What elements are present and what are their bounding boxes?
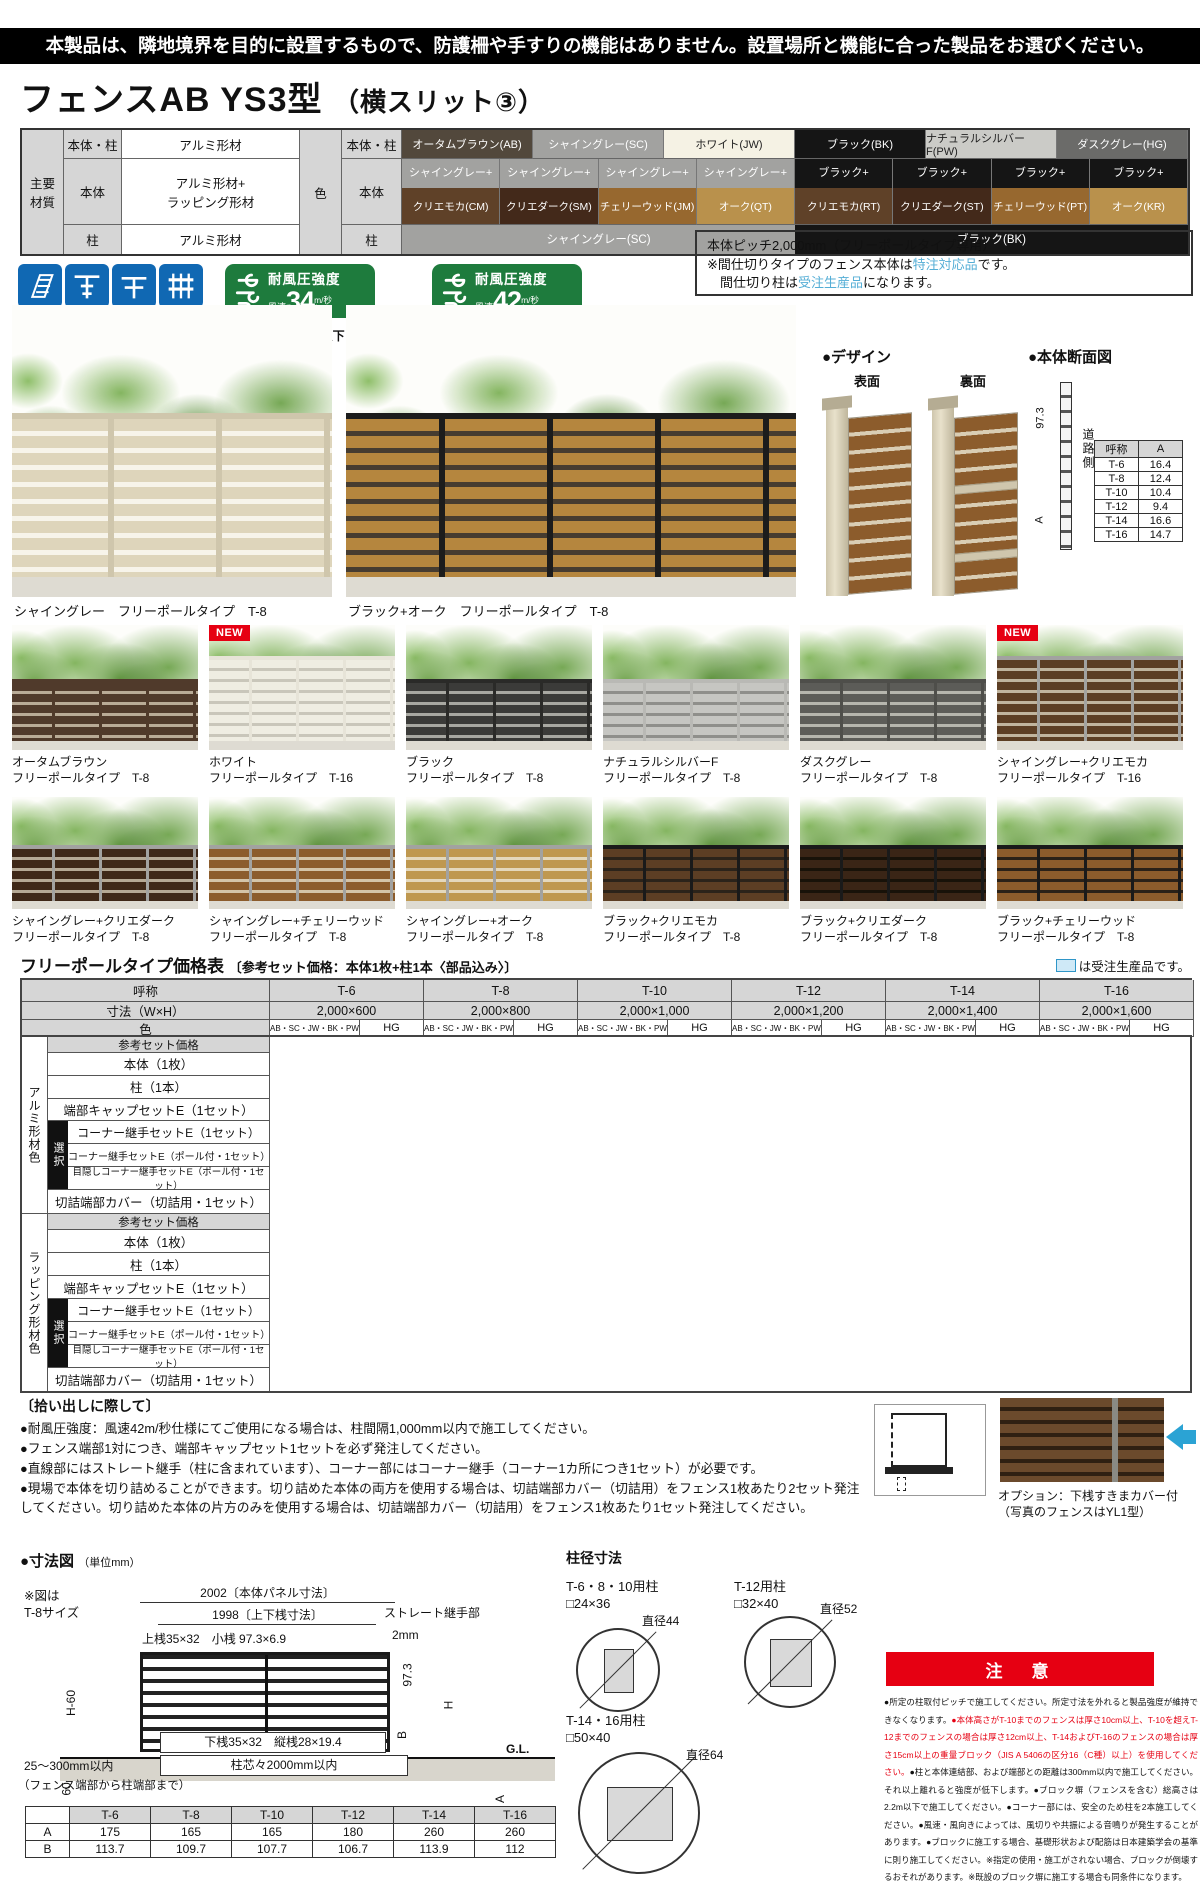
price-set-row: 参考セット価格 xyxy=(48,1214,269,1230)
type-name: フリーポールタイプ T-8 xyxy=(997,929,1183,945)
fence-photo xyxy=(12,625,198,750)
color-name: ブラック+クリエモカ xyxy=(603,913,789,929)
price-col-header: T-10 xyxy=(578,980,732,1002)
diameter-label: 直径52 xyxy=(820,1600,857,1617)
end-range-dim: 25～300mm以内 xyxy=(24,1757,113,1774)
color-code-group: AB・SC・JW・BK・PW xyxy=(886,1020,976,1036)
price-group: アルミ形材色参考セット価格本体（1枚）柱（1本）端部キャップセットE（1セット）… xyxy=(22,1037,269,1214)
price-size-header: 寸法（W×H） xyxy=(22,1002,270,1020)
sketch-panel xyxy=(891,1413,947,1467)
new-badge: NEW xyxy=(209,625,250,641)
wind-badge-title: 耐風圧強度 xyxy=(475,268,548,288)
legend-color-box xyxy=(1056,959,1076,972)
photo-caption: オータムブラウンフリーポールタイプ T-8 xyxy=(12,754,198,786)
photo-caption: シャイングレー+クリエダークフリーポールタイプ T-8 xyxy=(12,913,198,945)
ground-strip xyxy=(406,741,592,750)
gallery-item: ブラック+クリエモカフリーポールタイプ T-8 xyxy=(603,797,789,945)
price-group-label-text: アルミ形材色 xyxy=(26,1086,43,1164)
color-swatch: ダスクグレー(HG) xyxy=(1057,130,1188,159)
color-name: ブラック+クリエダーク xyxy=(800,913,986,929)
color-code-group: AB・SC・JW・BK・PW xyxy=(732,1020,822,1036)
ab-col-header: T-12 xyxy=(313,1807,394,1824)
photo-caption: ブラック+オーク フリーポールタイプ T-8 xyxy=(348,601,608,620)
ab-value-cell: 260 xyxy=(475,1824,556,1841)
cross-section-cell: T-8 xyxy=(1095,472,1139,486)
photo-caption: ダスクグレーフリーポールタイプ T-8 xyxy=(800,754,986,786)
multi-tier-glyph xyxy=(164,269,198,303)
ab-row: A175165165180260260 xyxy=(26,1824,556,1841)
design-heading: ●デザイン xyxy=(822,346,1022,367)
partition-icon xyxy=(112,264,156,308)
price-row-label: 柱（1本） xyxy=(48,1076,269,1099)
sketch-post xyxy=(897,1477,906,1491)
select-rows: コーナー継手セットE（1セット）コーナー継手セットE（ポール付・1セット）目隠し… xyxy=(68,1299,269,1368)
option-cover-photo xyxy=(1000,1398,1164,1482)
price-table-body: アルミ形材色参考セット価格本体（1枚）柱（1本）端部キャップセットE（1セット）… xyxy=(20,1035,1192,1393)
note-item: ●耐風圧強度：風速42m/秒仕様にてご使用になる場合は、柱間隔1,000mm以内… xyxy=(20,1419,872,1438)
fence-photo xyxy=(12,305,332,597)
photo-caption: ホワイトフリーポールタイプ T-16 xyxy=(209,754,395,786)
cross-section-cell: T-14 xyxy=(1095,514,1139,528)
type-name: フリーポールタイプ T-16 xyxy=(209,770,395,786)
fence-graphic xyxy=(12,679,198,742)
dim-h: H xyxy=(441,1701,455,1710)
cross-section-cell: 16.4 xyxy=(1139,458,1183,472)
cross-section-cell: 14.7 xyxy=(1139,528,1183,542)
wind-badge-title: 耐風圧強度 xyxy=(268,268,341,288)
ab-col-header: T-10 xyxy=(232,1807,313,1824)
price-col-header: T-14 xyxy=(886,980,1040,1002)
gallery-item: シャイングレー+チェリーウッドフリーポールタイプ T-8 xyxy=(209,797,395,945)
hero-photo-cell: ブラック+オーク フリーポールタイプ T-8 xyxy=(346,305,796,597)
color-code-hg: HG xyxy=(822,1020,885,1036)
photo-caption: シャイングレー+オークフリーポールタイプ T-8 xyxy=(406,913,592,945)
fence-graphic xyxy=(800,679,986,742)
price-row-label: 端部キャップセットE（1セット） xyxy=(48,1276,269,1299)
color-row-body-pillar: オータムブラウン(AB)シャイングレー(SC)ホワイト(JW)ブラック(BK)ナ… xyxy=(402,130,1188,159)
hero-photo-cell: シャイングレー フリーポールタイプ T-8 xyxy=(12,305,332,597)
material-value-column: アルミ形材 アルミ形材+ ラッピング形材 アルミ形材 xyxy=(122,130,300,254)
color-swatch-top: ブラック+ xyxy=(992,159,1089,188)
color-name: ダスクグレー xyxy=(800,754,986,770)
select-row-group: 選択コーナー継手セットE（1セット）コーナー継手セットE（ポール付・1セット）目… xyxy=(48,1299,269,1368)
ground-line-label: G.L. xyxy=(506,1742,529,1756)
dim-line xyxy=(140,1602,395,1603)
price-size-cell: 2,000×600 xyxy=(270,1002,424,1020)
photo-caption: ナチュラルシルバーFフリーポールタイプ T-8 xyxy=(603,754,789,786)
diameter-label: 直径64 xyxy=(686,1746,723,1763)
cross-section-col-header: 呼称 xyxy=(1095,441,1139,458)
ground-strip xyxy=(800,901,986,909)
price-data-area xyxy=(270,1037,1190,1391)
color-row-body: シャイングレー+クリエモカ(CM)シャイングレー+クリエダーク(SM)シャイング… xyxy=(402,159,1188,225)
material-part: 柱 xyxy=(64,225,122,254)
wood-panel-graphic xyxy=(848,412,912,595)
select-rows: コーナー継手セットE（1セット）コーナー継手セットE（ポール付・1セット）目隠し… xyxy=(68,1121,269,1190)
fence-photo xyxy=(997,797,1183,909)
photo-caption: ブラックフリーポールタイプ T-8 xyxy=(406,754,592,786)
partition-glyph xyxy=(117,269,151,303)
wood-panel-graphic xyxy=(954,412,1018,595)
color-header: 色 xyxy=(300,130,342,254)
cross-section-row: T-1010.4 xyxy=(1095,486,1183,500)
price-table-header: 呼称T-6T-8T-10T-12T-14T-16寸法（W×H）2,000×600… xyxy=(20,978,1192,1037)
color-swatch-combo: ブラック+チェリーウッド(PT) xyxy=(992,159,1090,225)
ab-col-header: T-6 xyxy=(70,1807,151,1824)
color-code-hg: HG xyxy=(976,1020,1039,1036)
option-caption: オプション：下桟すきまカバー付 （写真のフェンスはYL1型） xyxy=(998,1488,1178,1520)
fence-photo xyxy=(603,625,789,750)
gallery-item: シャイングレー+クリエダークフリーポールタイプ T-8 xyxy=(12,797,198,945)
ab-value-cell: 113.9 xyxy=(394,1841,475,1858)
color-swatch-top: ブラック+ xyxy=(1090,159,1187,188)
ground-strip xyxy=(12,741,198,750)
fence-graphic xyxy=(346,413,796,577)
price-row-label: 目隠しコーナー継手セットE（ポール付・1セット） xyxy=(68,1167,269,1190)
color-swatch-bottom: クリエモカ(RT) xyxy=(795,188,892,224)
color-code-group: AB・SC・JW・BK・PW xyxy=(270,1020,360,1036)
gallery-item: NEWシャイングレー+クリエモカフリーポールタイプ T-16 xyxy=(997,625,1183,786)
fence-photo xyxy=(346,305,796,597)
product-name: フェンスAB YS3型 xyxy=(20,81,323,119)
gallery-item: NEWホワイトフリーポールタイプ T-16 xyxy=(209,625,395,786)
color-name: ナチュラルシルバーF xyxy=(603,754,789,770)
ab-row: B113.7109.7107.7106.7113.9112 xyxy=(26,1841,556,1858)
price-col-header: T-12 xyxy=(732,980,886,1002)
fence-graphic xyxy=(800,845,986,901)
cross-section-cell: 16.6 xyxy=(1139,514,1183,528)
gallery-item: ブラック+クリエダークフリーポールタイプ T-8 xyxy=(800,797,986,945)
bottom-rail-dim: 下桟35×32 縦桟28×19.4 xyxy=(160,1732,386,1753)
color-swatch-bottom: クリエダーク(ST) xyxy=(893,188,990,224)
fence-graphic xyxy=(997,656,1183,741)
post-graphic xyxy=(826,405,848,596)
type-name: フリーポールタイプ T-8 xyxy=(406,929,592,945)
post-type-label: T-14・16用柱 xyxy=(566,1710,645,1729)
ab-value-cell: 106.7 xyxy=(313,1841,394,1858)
ab-col-header: T-16 xyxy=(475,1807,556,1824)
color-swatch-bottom: チェリーウッド(JM) xyxy=(599,188,696,224)
ab-header-row: T-6T-8T-10T-12T-14T-16 xyxy=(26,1807,556,1824)
fence-graphic xyxy=(12,413,332,577)
ab-value-cell: 107.7 xyxy=(232,1841,313,1858)
post-circle-diagram xyxy=(576,1628,660,1712)
color-swatch: オータムブラウン(AB) xyxy=(402,130,533,159)
material-value: アルミ形材+ ラッピング形材 xyxy=(122,159,300,225)
diameter-label: 直径44 xyxy=(642,1612,679,1629)
price-name-header: 呼称 xyxy=(22,980,270,1002)
info-line: 本体ピッチ2,000mm（フリーポールタイプ専用） xyxy=(707,237,1181,256)
info-line: 間仕切り柱は受注生産品になります。 xyxy=(707,274,1181,293)
note-item: ●直線部にはストレート継手（柱に含まれています）、コーナー部にはコーナー継手（コ… xyxy=(20,1459,872,1478)
ground-strip xyxy=(997,901,1183,909)
cross-section-row: T-812.4 xyxy=(1095,472,1183,486)
material-part: 本体 xyxy=(64,159,122,225)
cross-section-heading: ●本体断面図 xyxy=(1028,346,1194,367)
fence-graphic xyxy=(209,845,395,901)
ground-strip xyxy=(800,741,986,750)
fence-graphic xyxy=(406,845,592,901)
note-item: ●フェンス端部1対につき、端部キャップセット1セットを必ず発注してください。 xyxy=(20,1439,872,1458)
materials-header: 主要 材質 xyxy=(22,130,64,254)
post-type-label: T-6・8・10用柱 xyxy=(566,1576,658,1595)
color-part: 柱 xyxy=(342,225,402,254)
gallery-item: オータムブラウンフリーポールタイプ T-8 xyxy=(12,625,198,786)
price-size-cell: 2,000×1,200 xyxy=(732,1002,886,1020)
color-swatch-bottom: チェリーウッド(PT) xyxy=(992,188,1089,224)
notes-heading: 〔拾い出しに際して〕 xyxy=(20,1396,872,1416)
color-name: オータムブラウン xyxy=(12,754,198,770)
color-swatch: ブラック(BK) xyxy=(795,130,926,159)
price-col-header: T-16 xyxy=(1040,980,1194,1002)
color-code-group: AB・SC・JW・BK・PW xyxy=(578,1020,668,1036)
ab-value-cell: 180 xyxy=(313,1824,394,1841)
multi-tier-icon xyxy=(159,264,203,308)
type-name: フリーポールタイプ T-8 xyxy=(209,929,395,945)
front-label: 表面 xyxy=(822,371,912,391)
price-row-label: 本体（1枚） xyxy=(48,1053,269,1076)
ground-strip xyxy=(997,741,1183,750)
special-order-highlight: 特注対応品 xyxy=(913,257,978,272)
color-swatch-top: シャイングレー+ xyxy=(500,159,597,188)
color-swatch-combo: シャイングレー+クリエモカ(CM) xyxy=(402,159,500,225)
price-row-label: コーナー継手セットE（1セット） xyxy=(68,1299,269,1322)
rail-width-dim: 1998〔上下桟寸法〕 xyxy=(150,1606,385,1623)
price-group-label-text: ラッピング形材色 xyxy=(26,1251,43,1355)
color-part-column: 本体・柱 本体 柱 xyxy=(342,130,402,254)
top-rail-dim: 上桟35×32 小桟 97.3×6.9 xyxy=(142,1630,286,1647)
cross-section-row: T-1614.7 xyxy=(1095,528,1183,542)
gallery-item: ダスクグレーフリーポールタイプ T-8 xyxy=(800,625,986,786)
price-col-header: T-8 xyxy=(424,980,578,1002)
gallery-item: ブラック+チェリーウッドフリーポールタイプ T-8 xyxy=(997,797,1183,945)
color-swatch-combo: ブラック+オーク(KR) xyxy=(1090,159,1188,225)
color-name: シャイングレー+クリエダーク xyxy=(12,913,198,929)
back-label: 裏面 xyxy=(928,371,1018,391)
ground-strip xyxy=(406,901,592,909)
photo-caption: シャイングレー+チェリーウッドフリーポールタイプ T-8 xyxy=(209,913,395,945)
color-swatch-top: ブラック+ xyxy=(893,159,990,188)
dim-line xyxy=(158,1624,376,1625)
diameter-line xyxy=(582,1756,695,1869)
price-size-cell: 2,000×1,600 xyxy=(1040,1002,1194,1020)
design-back-figure: 裏面 xyxy=(928,371,1018,599)
fence-graphic xyxy=(603,845,789,901)
joint-label: ストレート継手部 xyxy=(384,1604,480,1621)
cross-section-cell: T-16 xyxy=(1095,528,1139,542)
option-arrow-icon-bar xyxy=(1183,1430,1196,1444)
price-size-cell: 2,000×800 xyxy=(424,1002,578,1020)
fence-photo: NEW xyxy=(997,625,1183,750)
product-subtitle: （横スリット③） xyxy=(333,87,545,117)
pitch-info-box: 本体ピッチ2,000mm（フリーポールタイプ専用） ※間仕切りタイプのフェンス本… xyxy=(695,230,1193,296)
cross-section-row: T-1416.6 xyxy=(1095,514,1183,528)
ab-row-label: A xyxy=(26,1824,70,1841)
price-group-label: ラッピング形材色 xyxy=(22,1214,48,1391)
type-name: フリーポールタイプ T-8 xyxy=(12,929,198,945)
free-pole-icon xyxy=(65,264,109,308)
ab-value-cell: 113.7 xyxy=(70,1841,151,1858)
price-row-label: 切詰端部カバー（切詰用・1セット） xyxy=(48,1190,269,1213)
photo-caption: シャイングレー+クリエモカフリーポールタイプ T-16 xyxy=(997,754,1183,786)
price-row-label: 目隠しコーナー継手セットE（ポール付・1セット） xyxy=(68,1345,269,1368)
fence-photo xyxy=(603,797,789,909)
fence-graphic xyxy=(603,679,789,742)
single-side-pattern-icon xyxy=(18,264,62,308)
ab-value-cell: 175 xyxy=(70,1824,151,1841)
page-title: フェンスAB YS3型 （横スリット③） xyxy=(20,72,545,121)
single-side-pattern-glyph xyxy=(23,269,57,303)
post-section-square xyxy=(604,1649,634,1693)
price-group-rows: 参考セット価格本体（1枚）柱（1本）端部キャップセットE（1セット）選択コーナー… xyxy=(48,1214,269,1391)
height-dimension-table: T-6T-8T-10T-12T-14T-16A17516516518026026… xyxy=(25,1806,556,1858)
end-range-note: （フェンス端部から柱端部まで） xyxy=(18,1777,190,1793)
fence-graphic xyxy=(997,845,1183,901)
color-swatch-top: シャイングレー+ xyxy=(402,159,499,188)
fence-photo xyxy=(406,797,592,909)
cross-section-cell: T-12 xyxy=(1095,500,1139,514)
cross-section-cell: 9.4 xyxy=(1139,500,1183,514)
color-swatch-bottom: クリエダーク(SM) xyxy=(500,188,597,224)
type-name: フリーポールタイプ T-8 xyxy=(603,929,789,945)
type-name: フリーポールタイプ T-8 xyxy=(800,929,986,945)
panel-width-dim: 2002〔本体パネル寸法〕 xyxy=(135,1584,400,1601)
ground-strip xyxy=(603,901,789,909)
free-pole-glyph xyxy=(70,269,104,303)
price-size-cell: 2,000×1,400 xyxy=(886,1002,1040,1020)
dimension-figure-heading: ●寸法図 （単位mm） xyxy=(20,1550,141,1571)
type-name: フリーポールタイプ T-8 xyxy=(12,770,198,786)
dim-97-3: 97.3 xyxy=(1035,407,1047,428)
ordering-notes: 〔拾い出しに際して〕 ●耐風圧強度：風速42m/秒仕様にてご使用になる場合は、柱… xyxy=(20,1396,872,1518)
price-group: ラッピング形材色参考セット価格本体（1枚）柱（1本）端部キャップセットE（1セッ… xyxy=(22,1214,269,1391)
price-col-header: T-6 xyxy=(270,980,424,1002)
caution-text: ●所定の柱取付ピッチで施工してください。所定寸法を外れると製品強度が維持できなく… xyxy=(884,1694,1198,1887)
photo-caption: シャイングレー フリーポールタイプ T-8 xyxy=(14,601,267,620)
color-swatch-top: シャイングレー+ xyxy=(599,159,696,188)
color-code-group: AB・SC・JW・BK・PW xyxy=(424,1020,514,1036)
color-part: 本体 xyxy=(342,159,402,225)
caution-segment: ●柱と本体連結部、および端部との距離は300mm以内で施工してください。それ以上… xyxy=(884,1767,1198,1882)
material-part-column: 本体・柱 本体 柱 xyxy=(64,130,122,254)
cross-section-cell: T-10 xyxy=(1095,486,1139,500)
material-part: 本体・柱 xyxy=(64,130,122,159)
post-type-label: T-12用柱 xyxy=(734,1576,786,1595)
price-size-cell: 2,000×1,000 xyxy=(578,1002,732,1020)
dim-a-label: A xyxy=(493,1795,507,1803)
diameter-line xyxy=(579,1631,656,1708)
ab-row-label: B xyxy=(26,1841,70,1858)
post-size-heading: 柱径寸法 xyxy=(566,1548,622,1568)
color-swatch-combo: シャイングレー+オーク(QT) xyxy=(697,159,795,225)
design-front-figure: 表面 xyxy=(822,371,912,599)
fence-photo xyxy=(800,797,986,909)
fence-graphic xyxy=(12,845,198,901)
photo-caption: ブラック+チェリーウッドフリーポールタイプ T-8 xyxy=(997,913,1183,945)
cross-section-cell: 12.4 xyxy=(1139,472,1183,486)
price-row-label: 本体（1枚） xyxy=(48,1230,269,1253)
post-pitch-dim: 柱芯々2000mm以内 xyxy=(160,1755,408,1776)
color-swatch: シャイングレー(SC) xyxy=(533,130,664,159)
color-part: 本体・柱 xyxy=(342,130,402,159)
photo-caption: ブラック+クリエモカフリーポールタイプ T-8 xyxy=(603,913,789,945)
made-to-order-legend: は受注生産品です。 xyxy=(1056,956,1190,975)
color-code-hg: HG xyxy=(668,1020,731,1036)
select-label-text: 選択 xyxy=(50,1320,66,1346)
fence-graphic xyxy=(406,679,592,742)
option-arrow-icon xyxy=(1166,1424,1183,1450)
color-swatch-top: シャイングレー+ xyxy=(697,159,794,188)
material-value: アルミ形材 xyxy=(122,130,300,159)
color-swatch-top: ブラック+ xyxy=(795,159,892,188)
photo-caption: ブラック+クリエダークフリーポールタイプ T-8 xyxy=(800,913,986,945)
ab-value-cell: 165 xyxy=(232,1824,313,1841)
price-set-row: 参考セット価格 xyxy=(48,1037,269,1053)
post-graphic xyxy=(932,405,954,596)
diameter-line xyxy=(748,1620,833,1705)
figure-size-note: ※図は T-8サイズ xyxy=(24,1588,79,1622)
post-size-value: □32×40 xyxy=(734,1596,778,1611)
ab-col-header: T-8 xyxy=(151,1807,232,1824)
ground-strip xyxy=(603,741,789,750)
color-swatch: ナチュラルシルバーF(PW) xyxy=(926,130,1057,159)
dim-h60: H-60 xyxy=(64,1690,78,1716)
fence-photo xyxy=(800,625,986,750)
price-row-label: 端部キャップセットE（1セット） xyxy=(48,1099,269,1122)
fence-photo: NEW xyxy=(209,625,395,750)
ab-corner-cell xyxy=(26,1807,70,1824)
post-size-value: □24×36 xyxy=(566,1596,610,1611)
new-badge: NEW xyxy=(997,625,1038,641)
ab-value-cell: 165 xyxy=(151,1824,232,1841)
ab-value-cell: 112 xyxy=(475,1841,556,1858)
type-name: フリーポールタイプ T-8 xyxy=(603,770,789,786)
type-name: フリーポールタイプ T-8 xyxy=(406,770,592,786)
ab-value-cell: 260 xyxy=(394,1824,475,1841)
post-circle-diagram xyxy=(578,1752,700,1874)
fence-graphic xyxy=(209,656,395,741)
ground-strip xyxy=(209,901,395,909)
color-name: ホワイト xyxy=(209,754,395,770)
color-name: ブラック+チェリーウッド xyxy=(997,913,1183,929)
ground-strip xyxy=(12,901,198,909)
ground-strip xyxy=(346,577,796,597)
color-code-hg: HG xyxy=(360,1020,423,1036)
cross-section-diagram xyxy=(1060,382,1072,550)
fence-photo xyxy=(209,797,395,909)
note-item: ●現場で本体を切り詰めることができます。切り詰めた本体の両方を使用する場合は、切… xyxy=(20,1479,872,1517)
color-swatch-bottom: オーク(QT) xyxy=(697,188,794,224)
joint-size: 2mm xyxy=(392,1628,419,1642)
cross-section-row: T-616.4 xyxy=(1095,458,1183,472)
color-name: シャイングレー+チェリーウッド xyxy=(209,913,395,929)
price-row-labels: アルミ形材色参考セット価格本体（1枚）柱（1本）端部キャップセットE（1セット）… xyxy=(22,1037,270,1391)
ground-strip xyxy=(209,741,395,750)
price-group-label: アルミ形材色 xyxy=(22,1037,48,1213)
color-swatch-combo: シャイングレー+クリエダーク(SM) xyxy=(500,159,598,225)
color-swatch-combo: ブラック+クリエダーク(ST) xyxy=(893,159,991,225)
ground-strip xyxy=(12,577,332,597)
color-swatch-bottom: クリエモカ(CM) xyxy=(402,188,499,224)
type-name: フリーポールタイプ T-8 xyxy=(800,770,986,786)
unit-note: （単位mm） xyxy=(78,1557,140,1569)
sketch-rail xyxy=(885,1467,953,1474)
price-row-label: 切詰端部カバー（切詰用・1セット） xyxy=(48,1368,269,1391)
color-swatch-combo: シャイングレー+チェリーウッド(JM) xyxy=(599,159,697,225)
cut-end-diagram xyxy=(874,1404,986,1496)
fence-photo xyxy=(12,797,198,909)
color-code-group: AB・SC・JW・BK・PW xyxy=(1040,1020,1130,1036)
